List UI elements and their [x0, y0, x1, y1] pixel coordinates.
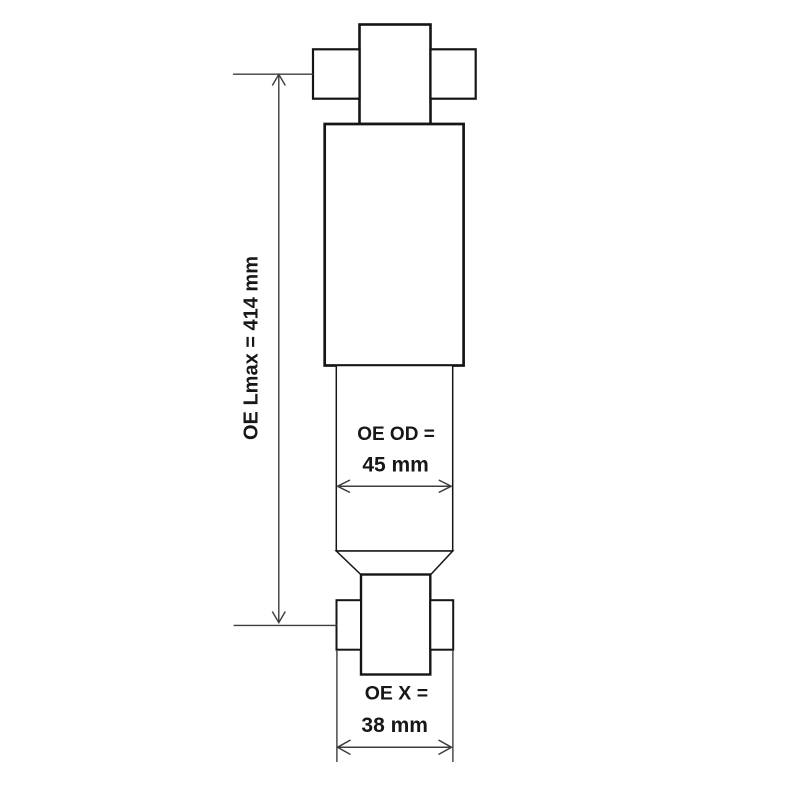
svg-text:45 mm: 45 mm	[362, 454, 429, 477]
svg-text:OE X =: OE X =	[365, 683, 428, 705]
svg-text:38 mm: 38 mm	[361, 714, 428, 737]
svg-text:OE OD =: OE OD =	[357, 424, 435, 445]
svg-text:OE Lmax = 414 mm: OE Lmax = 414 mm	[240, 256, 262, 440]
